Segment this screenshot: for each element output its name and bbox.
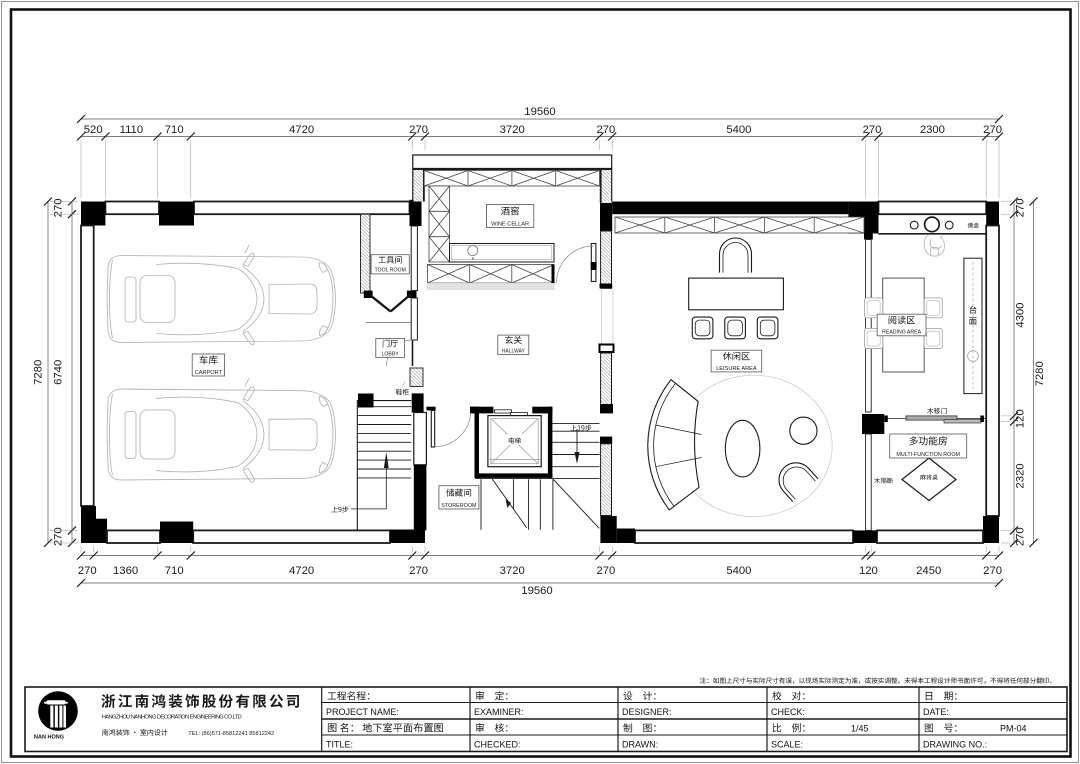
- svg-text:4720: 4720: [289, 565, 314, 577]
- svg-text:2320: 2320: [1015, 463, 1027, 488]
- svg-text:2450: 2450: [916, 565, 941, 577]
- svg-text:PM-04: PM-04: [1000, 724, 1027, 734]
- svg-text:EXAMINER:: EXAMINER:: [474, 707, 524, 717]
- svg-text:HALLWAY: HALLWAY: [502, 348, 526, 354]
- svg-text:4720: 4720: [289, 124, 314, 136]
- svg-text:6740: 6740: [53, 360, 65, 385]
- svg-text:CHECK:: CHECK:: [771, 707, 805, 717]
- svg-text:READING AREA: READING AREA: [882, 330, 921, 336]
- svg-text:270: 270: [983, 124, 1002, 136]
- svg-text:270: 270: [863, 124, 882, 136]
- svg-text:1/45: 1/45: [851, 724, 869, 734]
- svg-text:LEISURE AREA: LEISURE AREA: [716, 366, 757, 372]
- svg-text:710: 710: [165, 565, 184, 577]
- svg-text:270: 270: [78, 565, 97, 577]
- svg-text:MULTI-FUNCTION ROOM: MULTI-FUNCTION ROOM: [896, 452, 960, 458]
- svg-text:7280: 7280: [1034, 361, 1046, 386]
- svg-text:DRAWING NO.:: DRAWING NO.:: [923, 740, 987, 750]
- svg-text:270: 270: [983, 565, 1002, 577]
- svg-text:270: 270: [409, 124, 428, 136]
- svg-text:270: 270: [596, 565, 615, 577]
- svg-text:120: 120: [1015, 409, 1027, 428]
- svg-text:2300: 2300: [920, 124, 945, 136]
- svg-text:SCALE:: SCALE:: [771, 740, 803, 750]
- svg-text:LOBBY: LOBBY: [381, 351, 399, 357]
- svg-text:270: 270: [1015, 527, 1027, 546]
- svg-text:5400: 5400: [726, 124, 751, 136]
- svg-text:270: 270: [1015, 198, 1027, 217]
- svg-text:STOREROOM: STOREROOM: [441, 503, 477, 509]
- svg-text:CHECKED:: CHECKED:: [474, 740, 521, 750]
- svg-text:TEL: (86)571-85812241 85812242: TEL: (86)571-85812241 85812242: [188, 731, 274, 737]
- svg-text:3720: 3720: [500, 124, 525, 136]
- svg-text:DATE:: DATE:: [923, 707, 949, 717]
- svg-text:5400: 5400: [726, 565, 751, 577]
- svg-text:520: 520: [84, 124, 103, 136]
- svg-text:710: 710: [165, 124, 184, 136]
- svg-text:1110: 1110: [120, 124, 143, 136]
- svg-text:270: 270: [53, 527, 65, 546]
- svg-text:120: 120: [859, 565, 878, 577]
- svg-text:4300: 4300: [1015, 303, 1027, 328]
- svg-text:NAN HONG: NAN HONG: [34, 734, 64, 740]
- svg-text:TOOL ROOM: TOOL ROOM: [374, 268, 405, 274]
- svg-text:TITLE:: TITLE:: [326, 740, 353, 750]
- svg-text:HANGZHOU NANHONG DECORATION EN: HANGZHOU NANHONG DECORATION ENGINEERING …: [102, 715, 242, 721]
- svg-text:CARPORT: CARPORT: [195, 370, 223, 376]
- svg-text:DRAWN:: DRAWN:: [622, 740, 658, 750]
- svg-text:19560: 19560: [524, 106, 555, 118]
- svg-text:PROJECT NAME:: PROJECT NAME:: [326, 707, 399, 717]
- svg-text:7280: 7280: [33, 360, 45, 385]
- svg-text:DESIGNER:: DESIGNER:: [622, 707, 672, 717]
- svg-text:WINE CELLAR: WINE CELLAR: [491, 221, 529, 227]
- svg-text:270: 270: [596, 124, 615, 136]
- svg-text:19560: 19560: [521, 585, 552, 597]
- svg-text:270: 270: [409, 565, 428, 577]
- svg-text:3720: 3720: [500, 565, 525, 577]
- svg-text:1360: 1360: [113, 565, 138, 577]
